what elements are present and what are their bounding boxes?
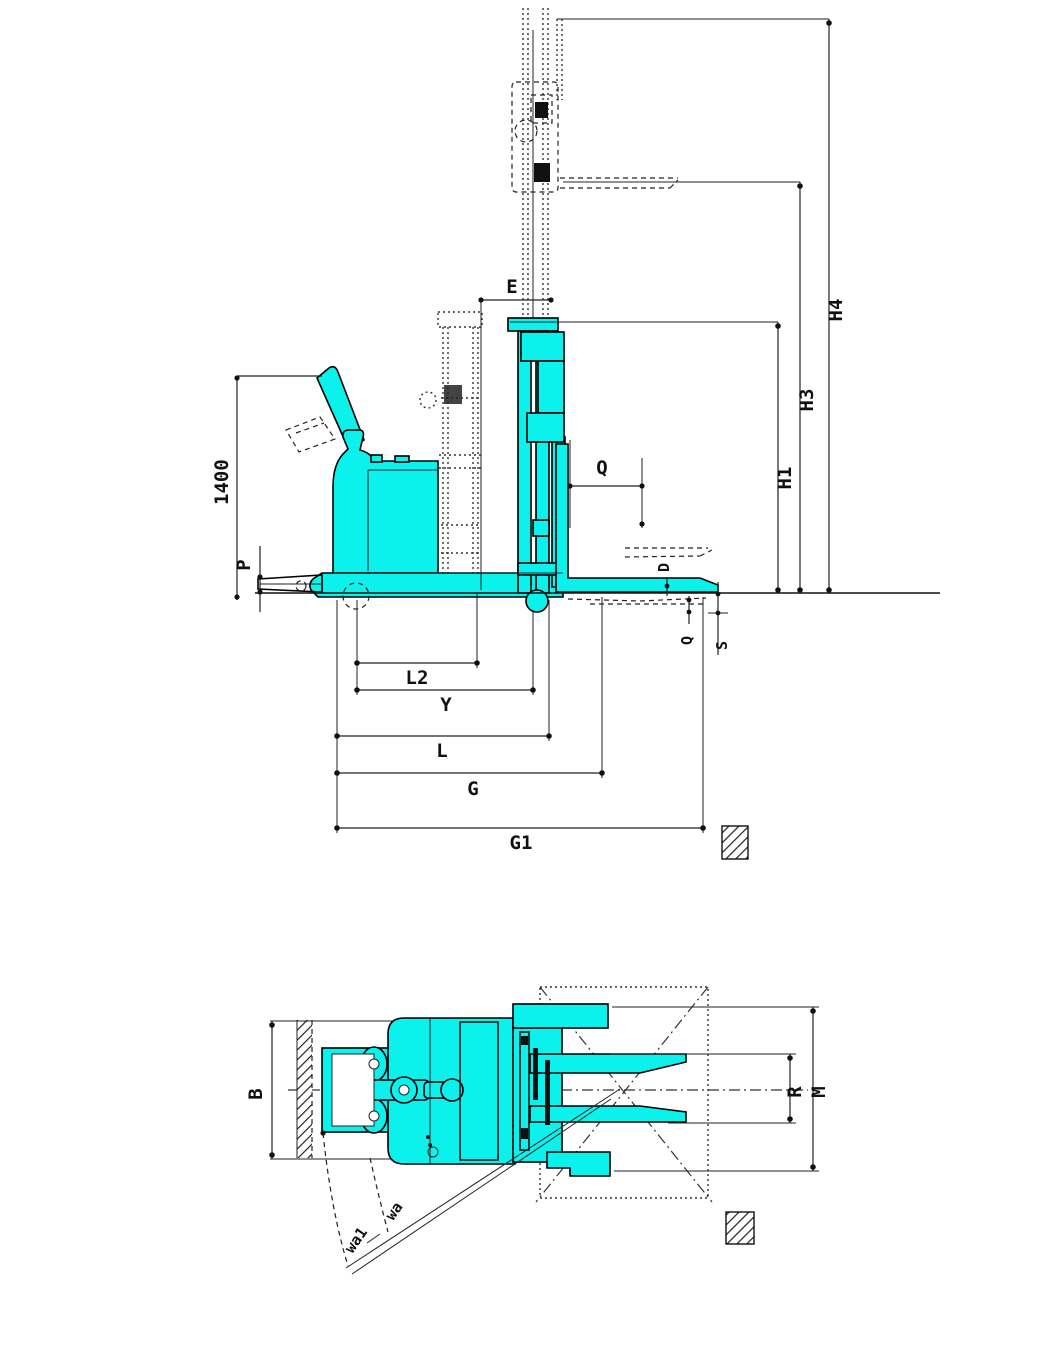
dim-h3: H3 [563, 182, 818, 593]
dim-label-e: E [506, 276, 517, 298]
dim-label-y: Y [440, 694, 452, 716]
aisle-wall-hatch [297, 1020, 312, 1158]
dim-label-b: B [245, 1088, 267, 1099]
dim-h4: H4 [557, 19, 847, 593]
top-view: wa1 wa B R M [245, 987, 830, 1274]
carriage-raised-dashed [512, 82, 678, 192]
dim-q-load: Q [567, 440, 644, 528]
outrigger-lower [547, 1152, 610, 1176]
fork-lower [530, 1106, 686, 1122]
fork-upper [530, 1054, 686, 1073]
forklift-dimension-diagram: 1400 P E [0, 0, 1060, 1349]
dim-label-r: R [784, 1086, 806, 1098]
dim-label-q-load: Q [596, 457, 607, 479]
dim-label-l: L [436, 740, 447, 762]
fork-side [556, 444, 718, 592]
datum-hatch-icon [722, 826, 748, 859]
dim-y: Y [354, 612, 536, 716]
dim-1400: 1400 [211, 375, 322, 600]
dim-label-l2: L2 [406, 667, 429, 689]
dim-g1: G1 [334, 597, 706, 854]
dim-label-q-fork: Q [678, 636, 696, 645]
dim-b: B [245, 1021, 275, 1159]
dim-label-g1: G1 [510, 832, 533, 854]
dim-label-m: M [808, 1086, 830, 1097]
dim-l2: L2 [354, 592, 480, 695]
side-view: 1400 P E [211, 8, 940, 859]
dim-label-p: P [233, 559, 255, 570]
dim-l: L [334, 600, 552, 833]
dim-label-d-fork: D [655, 563, 673, 572]
dim-label-1400: 1400 [211, 459, 233, 505]
dim-label-h4: H4 [825, 299, 847, 322]
dim-label-s-fork: S [713, 641, 731, 650]
datum-hatch-icon-2 [726, 1212, 754, 1244]
dim-label-h1: H1 [774, 467, 796, 490]
body-cowl [333, 430, 438, 573]
diagram-page: 1400 P E [0, 0, 1060, 1349]
dim-label-g: G [467, 778, 478, 800]
dim-q-fork: Q [678, 596, 696, 645]
dim-label-h3: H3 [796, 389, 818, 412]
dim-label-wa1: wa1 [341, 1224, 371, 1257]
dim-g: G [334, 597, 605, 800]
outrigger-upper [513, 1004, 608, 1028]
